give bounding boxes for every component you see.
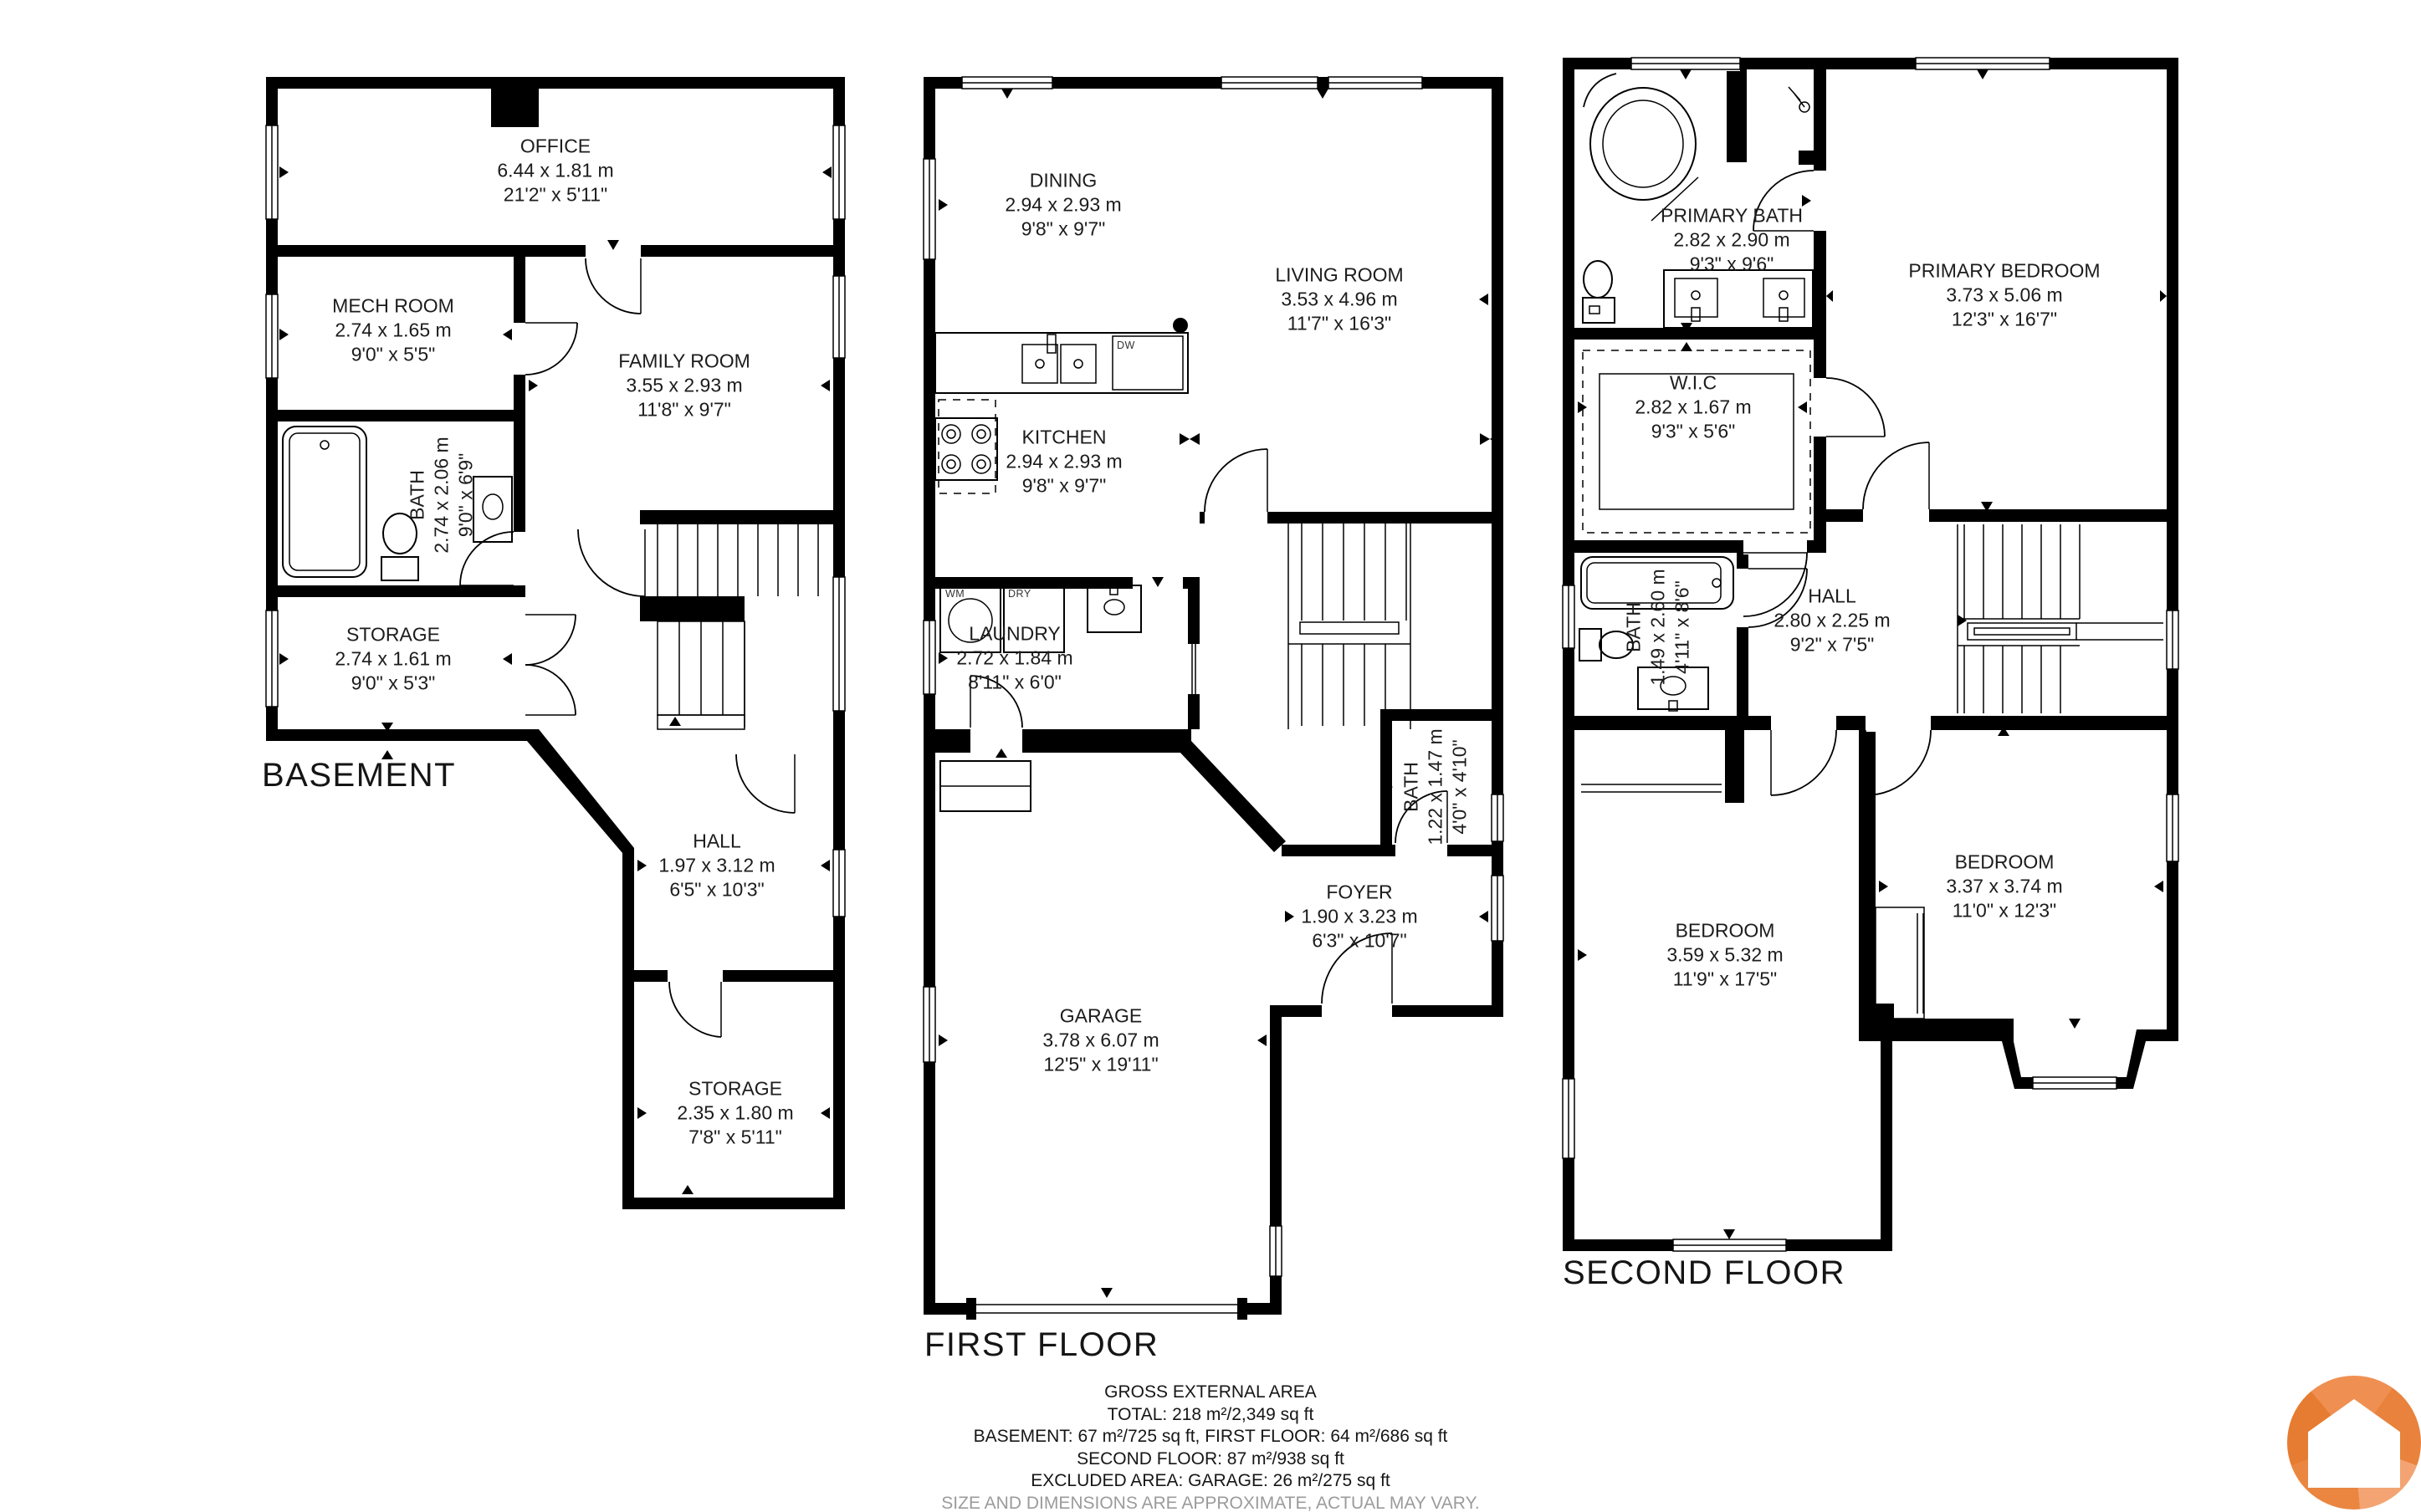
room-name: BEDROOM <box>1946 850 2062 875</box>
room-dim-metric: 2.82 x 1.67 m <box>1635 396 1751 420</box>
floor-title-second-floor: SECOND FLOOR <box>1563 1254 1845 1292</box>
room-dim-metric: 3.78 x 6.07 m <box>1042 1029 1159 1053</box>
room-name: MECH ROOM <box>332 294 454 319</box>
room-name: FAMILY ROOM <box>618 350 750 374</box>
room-name: OFFICE <box>497 135 613 159</box>
room-label-living-room: LIVING ROOM 3.53 x 4.96 m 11'7" x 16'3" <box>1275 263 1403 336</box>
room-dim-metric: 3.37 x 3.74 m <box>1946 875 2062 899</box>
room-dim-metric: 6.44 x 1.81 m <box>497 159 613 183</box>
summary-title: GROSS EXTERNAL AREA <box>941 1382 1479 1404</box>
room-dim-metric: 2.82 x 2.90 m <box>1661 228 1803 253</box>
area-summary: GROSS EXTERNAL AREA TOTAL: 218 m²/2,349 … <box>941 1382 1479 1512</box>
room-name: PRIMARY BATH <box>1661 204 1803 228</box>
floorplan-canvas <box>0 0 2421 1512</box>
room-dim-imperial: 8'11" x 6'0" <box>956 671 1072 695</box>
room-dim-imperial: 11'7" x 16'3" <box>1275 312 1403 336</box>
room-dim-imperial: 6'5" x 10'3" <box>658 878 775 902</box>
room-name: HALL <box>658 830 775 854</box>
room-dim-metric: 2.72 x 1.84 m <box>956 646 1072 671</box>
summary-excluded: EXCLUDED AREA: GARAGE: 26 m²/275 sq ft <box>941 1470 1479 1493</box>
room-label-second-floor-bath: BATH 1.49 x 2.60 m 4'11" x 8'6" <box>1622 569 1695 685</box>
room-dim-imperial: 4'11" x 8'6" <box>1671 569 1695 685</box>
room-label-primary-bath: PRIMARY BATH 2.82 x 2.90 m 9'3" x 9'6" <box>1661 204 1803 277</box>
room-name: LIVING ROOM <box>1275 263 1403 288</box>
room-dim-imperial: 11'8" x 9'7" <box>618 398 750 422</box>
floor-title-basement: BASEMENT <box>262 757 456 794</box>
room-label-family-room: FAMILY ROOM 3.55 x 2.93 m 11'8" x 9'7" <box>618 350 750 422</box>
house-icon <box>2308 1399 2400 1488</box>
room-dim-imperial: 9'0" x 5'5" <box>332 343 454 367</box>
room-dim-metric: 2.74 x 1.61 m <box>335 647 451 672</box>
room-dim-metric: 3.59 x 5.32 m <box>1666 943 1783 968</box>
washer-label: WM <box>945 588 965 600</box>
room-dim-imperial: 9'0" x 5'3" <box>335 672 451 696</box>
room-dim-imperial: 12'5" x 19'11" <box>1042 1053 1159 1077</box>
room-name: FOYER <box>1301 881 1417 905</box>
room-label-laundry: LAUNDRY 2.72 x 1.84 m 8'11" x 6'0" <box>956 622 1072 695</box>
floorplan-sheet: OFFICE 6.44 x 1.81 m 21'2" x 5'11" MECH … <box>0 0 2421 1512</box>
room-label-basement-hall: HALL 1.97 x 3.12 m 6'5" x 10'3" <box>658 830 775 902</box>
room-label-primary-bedroom: PRIMARY BEDROOM 3.73 x 5.06 m 12'3" x 16… <box>1908 259 2100 332</box>
room-label-bedroom-right: BEDROOM 3.37 x 3.74 m 11'0" x 12'3" <box>1946 850 2062 923</box>
room-dim-metric: 1.49 x 2.60 m <box>1646 569 1671 685</box>
room-dim-imperial: 4'0" x 4'10" <box>1448 728 1472 845</box>
room-dim-metric: 3.73 x 5.06 m <box>1908 283 2100 308</box>
room-label-second-floor-hall: HALL 2.80 x 2.25 m 9'2" x 7'5" <box>1774 585 1890 657</box>
room-dim-imperial: 6'3" x 10'7" <box>1301 929 1417 953</box>
room-name: BEDROOM <box>1666 919 1783 943</box>
room-dim-imperial: 11'0" x 12'3" <box>1946 899 2062 923</box>
room-label-garage: GARAGE 3.78 x 6.07 m 12'5" x 19'11" <box>1042 1004 1159 1077</box>
room-dim-metric: 2.74 x 1.65 m <box>332 319 454 343</box>
room-name: W.I.C <box>1635 371 1751 396</box>
basement-stairs <box>578 524 818 813</box>
room-dim-metric: 3.53 x 4.96 m <box>1275 288 1403 312</box>
room-label-storage-lower: STORAGE 2.35 x 1.80 m 7'8" x 5'11" <box>677 1077 793 1150</box>
room-dim-metric: 2.80 x 2.25 m <box>1774 609 1890 633</box>
room-name: LAUNDRY <box>956 622 1072 646</box>
second-floor-stairs <box>1958 524 2163 713</box>
brand-logo <box>2287 1376 2421 1509</box>
room-dim-imperial: 9'2" x 7'5" <box>1774 633 1890 657</box>
room-name: DINING <box>1005 169 1121 193</box>
floor-title-first-floor: FIRST FLOOR <box>924 1326 1159 1364</box>
room-dim-metric: 1.90 x 3.23 m <box>1301 905 1417 929</box>
room-name: STORAGE <box>677 1077 793 1101</box>
room-dim-imperial: 9'8" x 9'7" <box>1006 474 1122 498</box>
room-label-mech-room: MECH ROOM 2.74 x 1.65 m 9'0" x 5'5" <box>332 294 454 367</box>
room-dim-imperial: 9'0" x 6'9" <box>454 437 479 553</box>
room-dim-metric: 2.94 x 2.93 m <box>1006 450 1122 474</box>
first-floor-stairs <box>1288 524 1410 729</box>
room-name: HALL <box>1774 585 1890 609</box>
room-label-bedroom-left: BEDROOM 3.59 x 5.32 m 11'9" x 17'5" <box>1666 919 1783 992</box>
room-dim-imperial: 9'8" x 9'7" <box>1005 217 1121 242</box>
room-name: STORAGE <box>335 623 451 647</box>
room-name: KITCHEN <box>1006 426 1122 450</box>
room-dim-imperial: 11'9" x 17'5" <box>1666 968 1783 992</box>
room-dim-metric: 2.74 x 2.06 m <box>430 437 454 553</box>
room-label-storage-upper: STORAGE 2.74 x 1.61 m 9'0" x 5'3" <box>335 623 451 696</box>
room-dim-metric: 3.55 x 2.93 m <box>618 374 750 398</box>
room-label-dining: DINING 2.94 x 2.93 m 9'8" x 9'7" <box>1005 169 1121 242</box>
room-dim-metric: 1.97 x 3.12 m <box>658 854 775 878</box>
room-dim-imperial: 7'8" x 5'11" <box>677 1126 793 1150</box>
summary-basement-first: BASEMENT: 67 m²/725 sq ft, FIRST FLOOR: … <box>941 1426 1479 1448</box>
summary-disclaimer: SIZE AND DIMENSIONS ARE APPROXIMATE, ACT… <box>941 1493 1479 1512</box>
room-name: BATH <box>1622 569 1646 685</box>
room-name: PRIMARY BEDROOM <box>1908 259 2100 283</box>
room-dim-imperial: 21'2" x 5'11" <box>497 183 613 207</box>
room-label-first-floor-bath: BATH 1.22 x 1.47 m 4'0" x 4'10" <box>1400 728 1472 845</box>
first-floor-plan <box>922 75 1505 1320</box>
room-label-wic: W.I.C 2.82 x 1.67 m 9'3" x 5'6" <box>1635 371 1751 444</box>
summary-total: TOTAL: 218 m²/2,349 sq ft <box>941 1404 1479 1427</box>
room-name: BATH <box>406 437 430 553</box>
room-dim-imperial: 9'3" x 9'6" <box>1661 253 1803 277</box>
room-label-basement-bath: BATH 2.74 x 2.06 m 9'0" x 6'9" <box>406 437 479 553</box>
primary-bath-fixtures <box>1583 74 1813 328</box>
summary-second: SECOND FLOOR: 87 m²/938 sq ft <box>941 1448 1479 1471</box>
room-name: BATH <box>1400 728 1424 845</box>
room-name: GARAGE <box>1042 1004 1159 1029</box>
room-label-kitchen: KITCHEN 2.94 x 2.93 m 9'8" x 9'7" <box>1006 426 1122 498</box>
room-label-office: OFFICE 6.44 x 1.81 m 21'2" x 5'11" <box>497 135 613 207</box>
room-dim-imperial: 9'3" x 5'6" <box>1635 420 1751 444</box>
room-dim-metric: 2.94 x 2.93 m <box>1005 193 1121 217</box>
room-dim-metric: 1.22 x 1.47 m <box>1424 728 1448 845</box>
room-label-foyer: FOYER 1.90 x 3.23 m 6'3" x 10'7" <box>1301 881 1417 953</box>
room-dim-imperial: 12'3" x 16'7" <box>1908 308 2100 332</box>
room-dim-metric: 2.35 x 1.80 m <box>677 1101 793 1126</box>
dryer-label: DRY <box>1008 588 1031 600</box>
dishwasher-label: DW <box>1117 340 1135 351</box>
